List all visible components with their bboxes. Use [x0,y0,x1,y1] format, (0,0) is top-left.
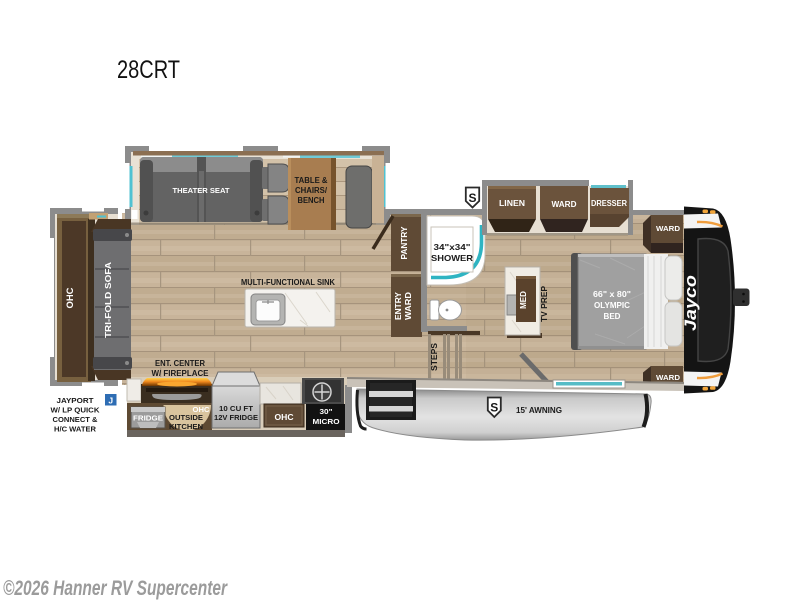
svg-text:30": 30" [320,407,333,416]
svg-text:TRI-FOLD SOFA: TRI-FOLD SOFA [103,262,113,338]
svg-text:15' AWNING: 15' AWNING [516,405,562,415]
svg-text:SHOWER: SHOWER [431,253,473,263]
svg-text:10 CU FT: 10 CU FT [219,404,253,413]
svg-text:OHC: OHC [65,287,75,309]
svg-text:34"x34": 34"x34" [434,242,471,252]
svg-text:DRESSER: DRESSER [591,199,627,208]
svg-text:TABLE &: TABLE & [295,176,328,185]
svg-text:CONNECT &: CONNECT & [53,415,99,424]
svg-text:MULTI-FUNCTIONAL SINK: MULTI-FUNCTIONAL SINK [241,277,336,287]
svg-text:OLYMPIC: OLYMPIC [594,300,630,310]
svg-text:BENCH: BENCH [298,196,325,205]
svg-text:MED: MED [519,291,528,309]
svg-text:OHC: OHC [193,405,211,414]
svg-text:28CRT: 28CRT [117,56,180,84]
svg-text:LINEN: LINEN [499,199,525,208]
svg-text:TV PREP: TV PREP [540,285,549,322]
svg-text:OHC: OHC [275,413,294,422]
svg-text:66" x 80": 66" x 80" [593,289,631,299]
svg-text:WARD: WARD [656,224,681,233]
svg-text:MICRO: MICRO [313,417,340,426]
svg-text:W/ FIREPLACE: W/ FIREPLACE [152,369,210,378]
svg-text:CHAIRS/: CHAIRS/ [295,186,328,195]
svg-text:THEATER SEAT: THEATER SEAT [173,186,230,195]
svg-text:JAYPORT: JAYPORT [57,396,94,405]
svg-text:H/C WATER: H/C WATER [54,425,97,434]
svg-text:BED: BED [604,311,621,321]
svg-text:S: S [468,191,476,205]
svg-text:WARD: WARD [552,200,577,209]
svg-text:FRIDGE: FRIDGE [133,414,163,423]
svg-text:W/ LP QUICK: W/ LP QUICK [51,406,101,415]
svg-text:ENT. CENTER: ENT. CENTER [155,359,205,368]
svg-text:PANTRY: PANTRY [400,226,409,260]
svg-text:KITCHEN: KITCHEN [169,422,203,431]
svg-text:STEPS: STEPS [430,342,439,371]
svg-text:WARD: WARD [404,292,413,320]
svg-text:©2026 Hanner RV Supercenter: ©2026 Hanner RV Supercenter [3,577,228,600]
svg-text:J: J [108,396,113,406]
svg-text:ENTRY: ENTRY [394,291,403,320]
svg-text:WARD: WARD [656,373,681,382]
svg-text:OUTSIDE: OUTSIDE [169,413,203,422]
svg-text:12V FRIDGE: 12V FRIDGE [214,413,258,422]
svg-text:Jayco: Jayco [681,275,700,331]
svg-text:S: S [490,401,498,415]
